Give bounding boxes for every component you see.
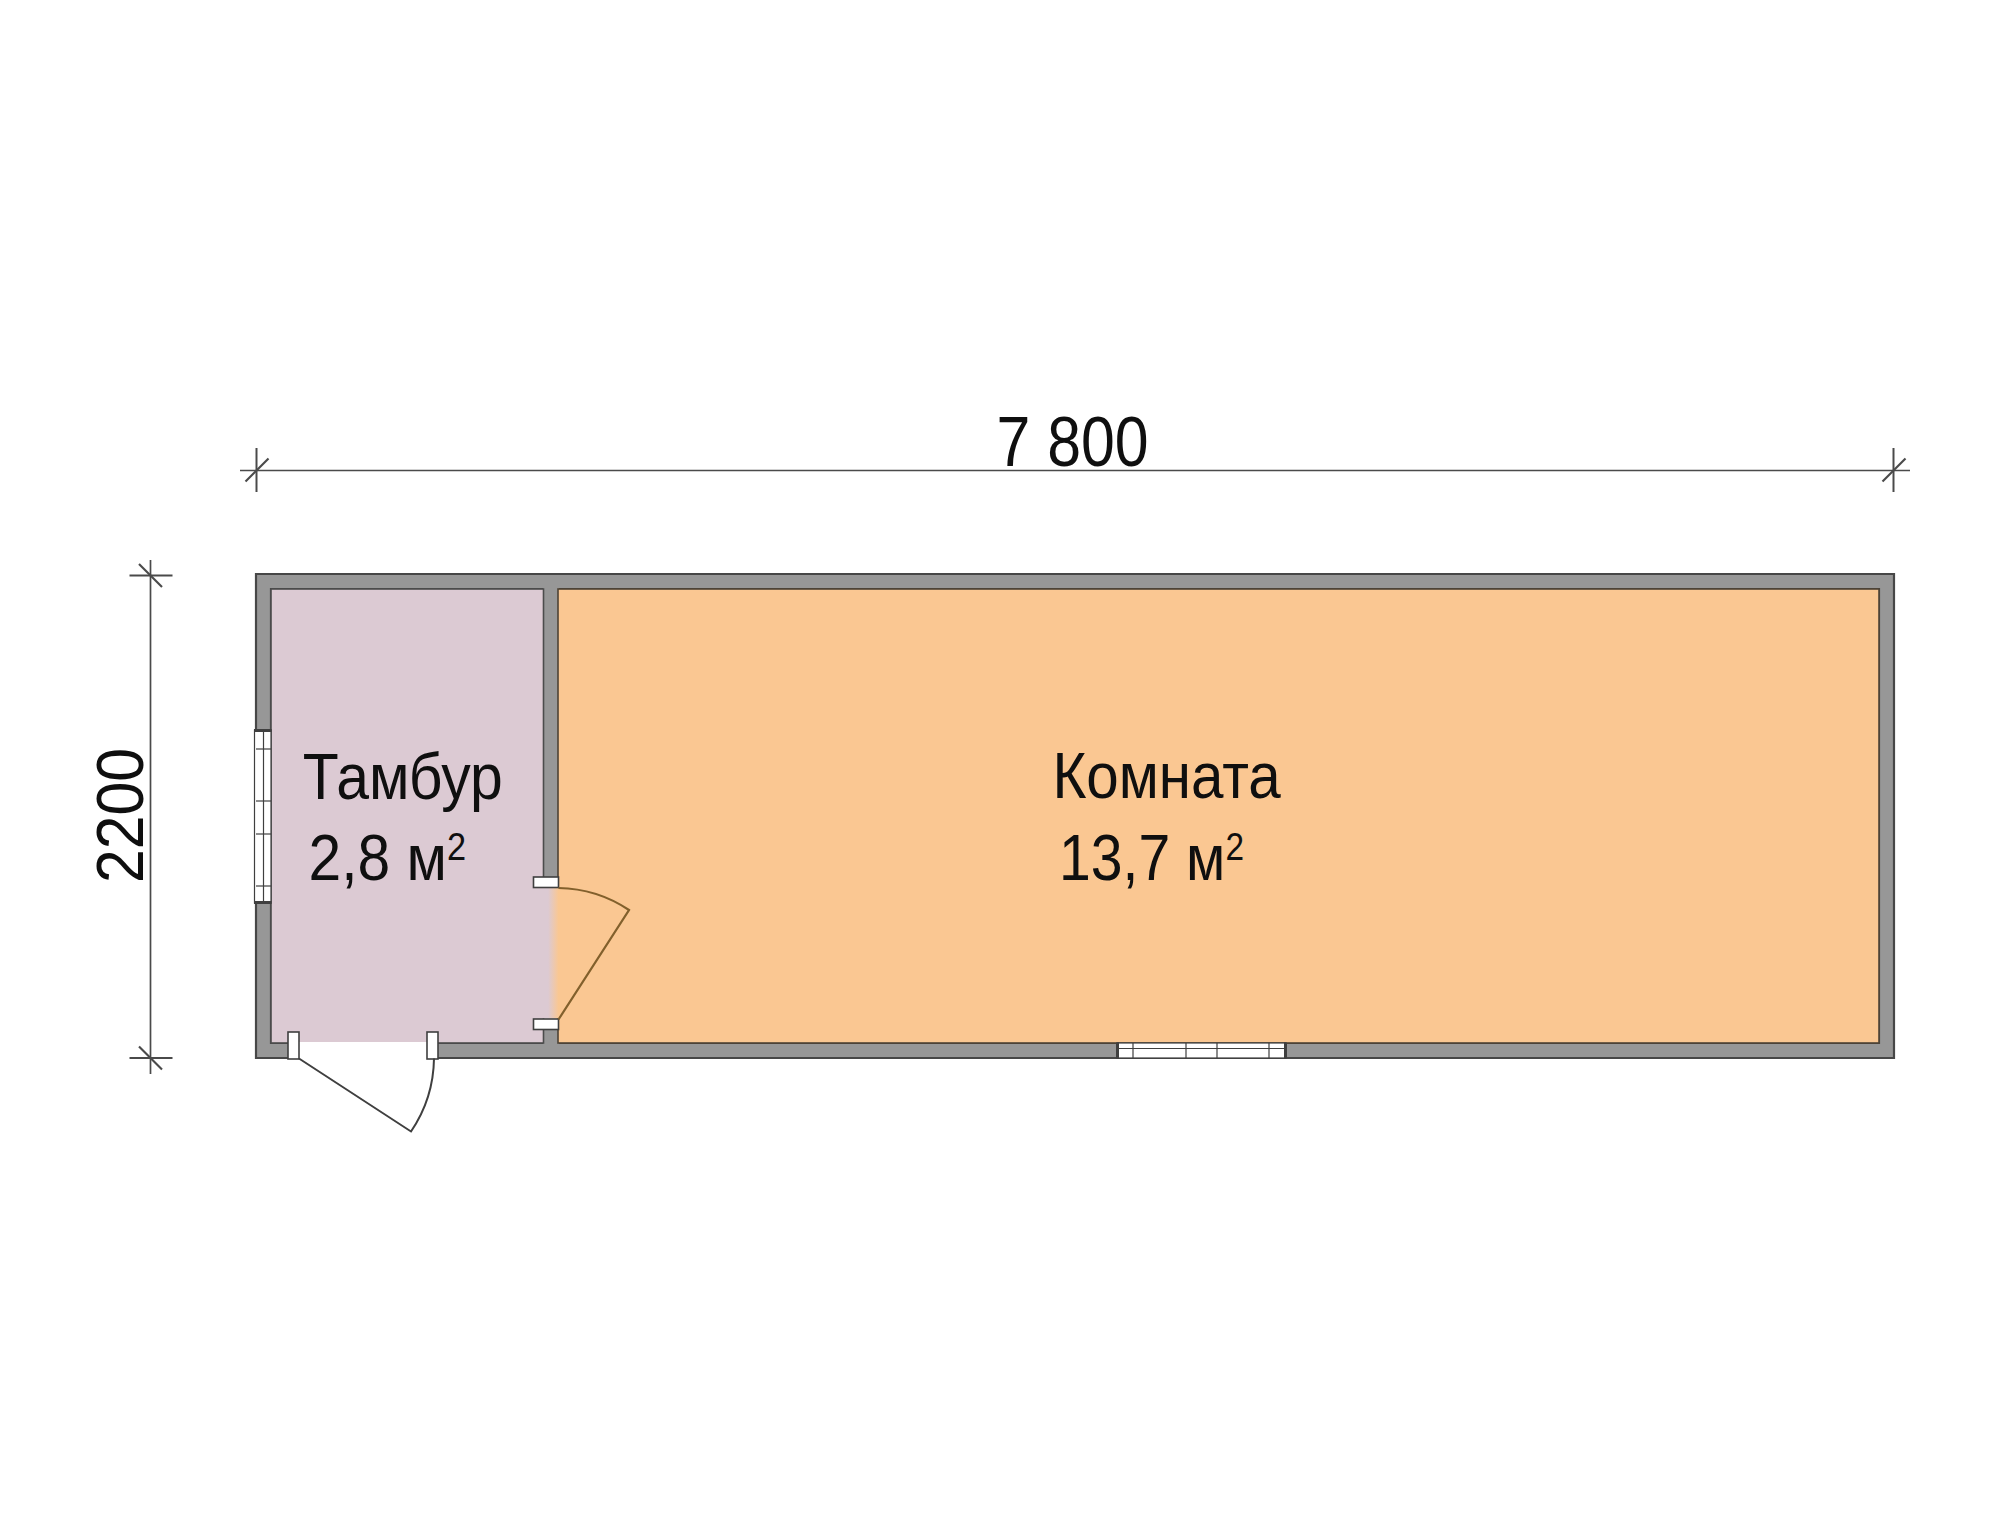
svg-text:13,7 м2: 13,7 м2	[1059, 821, 1244, 894]
svg-text:2200: 2200	[83, 748, 157, 883]
svg-text:Тамбур: Тамбур	[303, 740, 503, 813]
svg-text:2,8 м2: 2,8 м2	[309, 821, 467, 894]
svg-text:Комната: Комната	[1052, 739, 1281, 812]
svg-text:7 800: 7 800	[997, 403, 1149, 481]
